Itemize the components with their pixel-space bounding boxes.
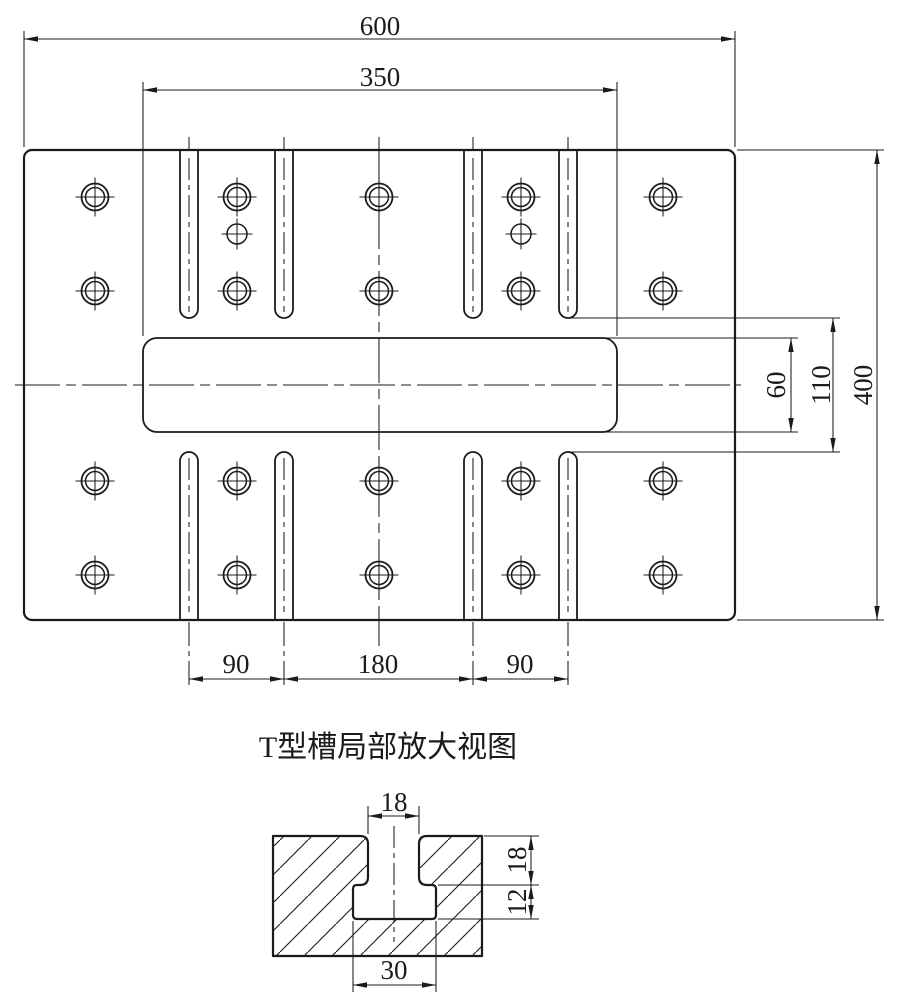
dim-400-label: 400 xyxy=(848,365,878,406)
dim-18-right-label: 18 xyxy=(502,847,532,874)
dim-12-right-label: 12 xyxy=(502,889,532,916)
drawing-page: 600 350 400 110 xyxy=(0,0,900,1000)
main-view: 600 350 400 110 xyxy=(15,11,884,687)
dim-180-label: 180 xyxy=(358,649,399,679)
dim-90-left-label: 90 xyxy=(223,649,250,679)
dim-600-label: 600 xyxy=(360,11,401,41)
dim-350-label: 350 xyxy=(360,62,401,92)
dim-18-top-label: 18 xyxy=(381,787,408,817)
detail-view: 18 18 12 30 xyxy=(273,787,539,992)
dimension-350: 350 xyxy=(143,62,617,336)
dim-110-label: 110 xyxy=(806,365,836,405)
engineering-drawing: 600 350 400 110 xyxy=(0,0,900,1000)
plate-centerlines xyxy=(15,137,741,646)
detail-view-title: T型槽局部放大视图 xyxy=(259,731,517,764)
dim-90-right-label: 90 xyxy=(507,649,534,679)
dim-30-label: 30 xyxy=(381,955,408,985)
t-slot-section xyxy=(273,836,482,956)
dim-60-label: 60 xyxy=(761,372,791,399)
